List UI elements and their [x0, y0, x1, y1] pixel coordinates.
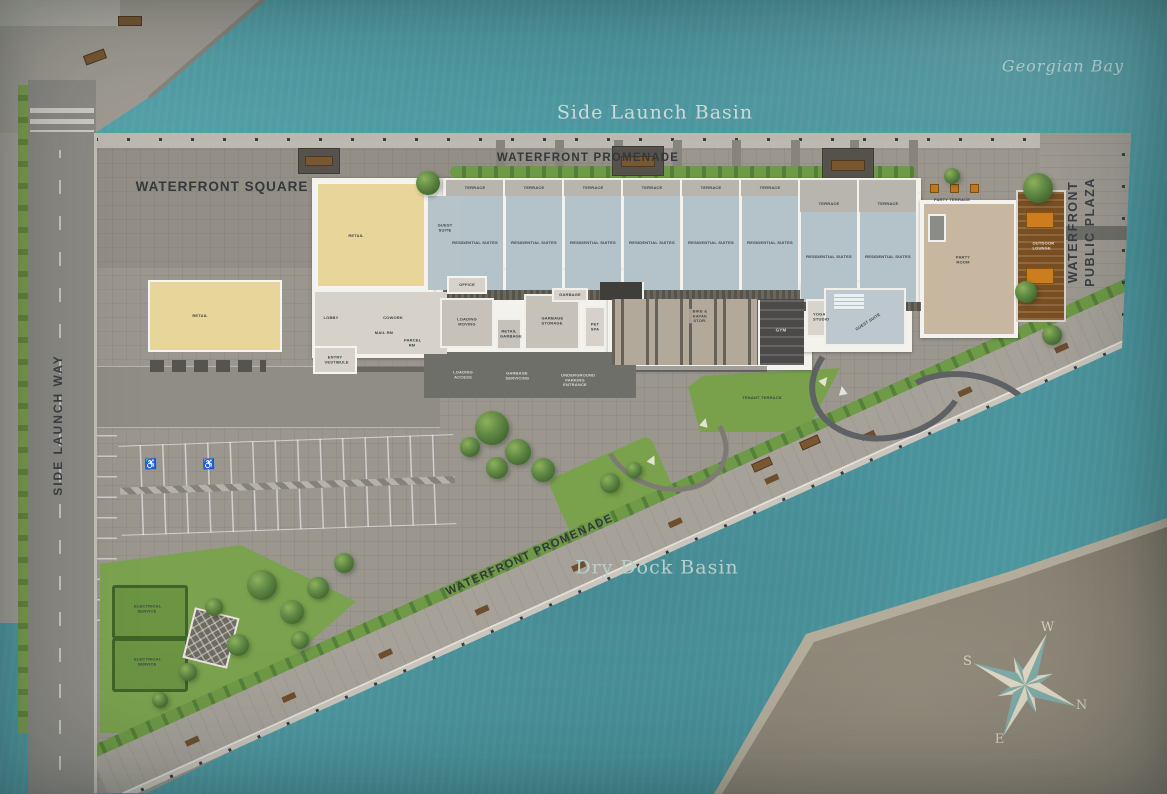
planter — [298, 148, 340, 174]
loading-moving-label: LOADING MOVING — [457, 317, 477, 327]
suite-label: RESIDENTIAL SUITES — [511, 241, 557, 246]
mail-room-label: MAIL RM — [375, 331, 393, 336]
bike-kayak-label: BIKE & KAYAK STOR. — [689, 309, 711, 323]
tree — [291, 631, 309, 649]
bench — [831, 160, 865, 171]
tree — [179, 663, 197, 681]
pier-deck — [0, 0, 120, 26]
waterfront-promenade-top-label: WATERFRONT PROMENADE — [497, 152, 679, 166]
tree — [486, 457, 508, 479]
lounge-seat — [1026, 212, 1054, 228]
umbrella — [950, 184, 959, 193]
parcel-room-label: PARCEL RM — [404, 338, 420, 348]
suite-label: RESIDENTIAL SUITES — [452, 241, 498, 246]
water-label-side-launch-basin: Side Launch Basin — [557, 102, 753, 125]
tree — [280, 600, 304, 624]
underground-parking-label: UNDERGROUND PARKING ENTRANCE — [561, 373, 589, 387]
terrace-label: TERRACE — [819, 202, 840, 207]
tree — [247, 570, 277, 600]
retail-upper — [316, 182, 426, 288]
tree — [307, 577, 329, 599]
crosswalk — [30, 108, 94, 132]
water-label-dry-dock-basin: Dry Dock Basin — [575, 557, 738, 580]
pet-spa-label: PET SPA — [590, 322, 601, 332]
plaza-label-line2: PUBLIC PLAZA — [1082, 177, 1099, 287]
tree — [205, 598, 223, 616]
outdoor-lounge-label: OUTDOOR LOUNGE — [1033, 241, 1050, 251]
planter — [822, 148, 874, 182]
tree — [334, 553, 354, 573]
tree — [1015, 281, 1037, 303]
tree — [1023, 173, 1053, 203]
waterfront-square-label: WATERFRONT SQUARE — [136, 179, 309, 195]
plaza-label: WATERFRONT PUBLIC PLAZA — [1065, 177, 1099, 287]
terrace-strip — [446, 180, 918, 196]
street-label-side-launch-way: SIDE LAUNCH WAY — [51, 354, 65, 496]
compass-s: S — [963, 654, 973, 670]
verge — [18, 85, 28, 733]
compass-rose — [955, 605, 1095, 775]
guest-suite-label: GUEST SUITE — [435, 223, 455, 233]
water-label-georgian-bay: Georgian Bay — [1002, 56, 1124, 75]
terrace-label: TERRACE — [878, 202, 899, 207]
retail-label: RETAIL — [348, 234, 363, 239]
suite-label: RESIDENTIAL SUITES — [570, 241, 616, 246]
bike-kayak-storage — [612, 299, 758, 365]
lobby-label: LOBBY — [324, 316, 339, 321]
tree — [600, 473, 620, 493]
pool — [834, 294, 864, 310]
terrace-label: TERRACE — [524, 186, 545, 191]
compass-e: E — [995, 732, 1006, 748]
compass-n: N — [1076, 698, 1088, 714]
electrical-service-label: ELECTRICAL SERVICE — [134, 604, 160, 614]
bike-racks — [150, 360, 266, 372]
garbage-storage-label: GARBAGE STORAGE — [542, 316, 563, 326]
elevator-core — [600, 282, 644, 300]
sidewalk — [0, 133, 18, 623]
party-room-label: PARTY ROOM — [956, 255, 971, 265]
tree — [505, 439, 531, 465]
retail-label: RETAIL — [192, 314, 207, 319]
loading-access-label: LOADING ACCESS — [453, 370, 473, 380]
plaza-label-line1: WATERFRONT — [1065, 177, 1082, 287]
office-label: OFFICE — [459, 283, 475, 288]
tree — [227, 634, 249, 656]
tree — [626, 462, 642, 478]
retail-garbage-label: RETAIL GARBAGE — [500, 329, 518, 339]
suite-label: RESIDENTIAL SUITES — [688, 241, 734, 246]
curb — [94, 133, 97, 793]
cowork-label: COWORK — [383, 316, 403, 321]
terrace-label: TERRACE — [583, 186, 604, 191]
electrical-service-label: ELECTRICAL SERVICE — [134, 657, 160, 667]
entry-vestibule-label: ENTRY VESTIBULE — [325, 355, 346, 365]
terrace-label: TERRACE — [701, 186, 722, 191]
terrace-label: TERRACE — [760, 186, 781, 191]
suite-label: RESIDENTIAL SUITES — [806, 255, 852, 260]
tree — [460, 437, 480, 457]
tenant-terrace-label: TENANT TERRACE — [742, 396, 781, 401]
party-terrace-label: PARTY TERRACE — [934, 198, 970, 203]
bench — [305, 156, 333, 166]
suite-label: RESIDENTIAL SUITES — [865, 255, 911, 260]
tree — [531, 458, 555, 482]
parking-lot: ♿ ♿ — [106, 424, 466, 548]
tree — [1042, 325, 1062, 345]
garbage-servicing-label: GARBAGE SERVICING — [506, 371, 529, 381]
tree — [416, 171, 440, 195]
entry-drive — [95, 366, 440, 428]
tree — [944, 168, 960, 184]
umbrella — [930, 184, 939, 193]
compass-w: W — [1041, 620, 1055, 636]
terrace-label: TERRACE — [642, 186, 663, 191]
party-room-wc — [928, 214, 946, 242]
accessible-parking-icon: ♿ — [203, 459, 216, 471]
accessible-parking-icon: ♿ — [145, 459, 158, 471]
umbrella — [970, 184, 979, 193]
terrace-label: TERRACE — [465, 186, 486, 191]
site-plan: SIDE LAUNCH WAY T — [0, 0, 1167, 794]
suite-label: RESIDENTIAL SUITES — [629, 241, 675, 246]
suite-label: RESIDENTIAL SUITES — [747, 241, 793, 246]
tree — [475, 411, 509, 445]
lobby-wing — [315, 292, 447, 354]
tree — [152, 692, 168, 708]
gym-label: GYM — [776, 327, 787, 332]
bench — [118, 16, 142, 26]
retail-lower — [148, 280, 282, 352]
garbage-label: GARBAGE — [559, 293, 581, 298]
yoga-studio-label: YOGA STUDIO — [813, 312, 825, 322]
